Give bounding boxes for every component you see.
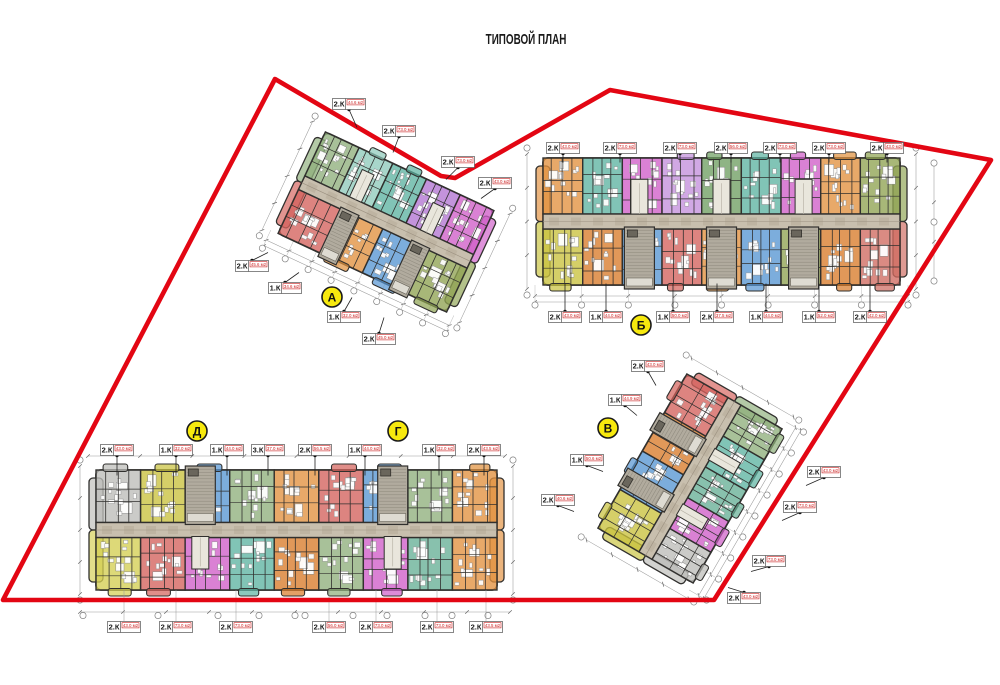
- svg-text:2.К: 2.К: [716, 144, 727, 153]
- svg-text:50.6 м2: 50.6 м2: [586, 456, 602, 461]
- svg-text:1.К: 1.К: [610, 396, 621, 405]
- svg-text:2.К: 2.К: [314, 623, 325, 632]
- svg-text:Д: Д: [193, 424, 202, 438]
- svg-text:44.0 м2: 44.0 м2: [765, 313, 781, 318]
- svg-text:56.0 м2: 56.0 м2: [328, 623, 344, 628]
- svg-text:2.К: 2.К: [729, 594, 740, 603]
- svg-text:2.К: 2.К: [765, 144, 776, 153]
- svg-text:73.0 м2: 73.0 м2: [679, 144, 695, 149]
- svg-text:2.К: 2.К: [300, 446, 311, 455]
- svg-text:2.К: 2.К: [109, 623, 120, 632]
- svg-text:2.К: 2.К: [665, 144, 676, 153]
- svg-text:43.0 м2: 43.0 м2: [647, 362, 663, 367]
- svg-text:1.К: 1.К: [270, 284, 281, 293]
- svg-text:Б: Б: [637, 318, 646, 332]
- svg-text:43.0 м2: 43.0 м2: [743, 594, 759, 599]
- svg-text:2.К: 2.К: [855, 313, 866, 322]
- svg-text:2.К: 2.К: [469, 446, 480, 455]
- svg-text:44.0 м2: 44.0 м2: [364, 446, 380, 451]
- svg-text:73.0 м2: 73.0 м2: [235, 623, 251, 628]
- svg-text:1.К: 1.К: [424, 446, 435, 455]
- svg-text:37.5 м2: 37.5 м2: [716, 313, 732, 318]
- svg-text:73.0 м2: 73.0 м2: [779, 144, 795, 149]
- svg-text:32.0 м2: 32.0 м2: [438, 446, 454, 451]
- svg-text:34.6 м2: 34.6 м2: [284, 284, 300, 289]
- svg-text:1.К: 1.К: [572, 456, 583, 465]
- svg-text:32.0 м2: 32.0 м2: [343, 313, 359, 318]
- svg-text:50.0 м2: 50.0 м2: [672, 313, 688, 318]
- svg-text:2.К: 2.К: [754, 557, 765, 566]
- svg-text:73.0 м2: 73.0 м2: [436, 623, 452, 628]
- svg-text:2.К: 2.К: [102, 446, 113, 455]
- svg-text:Г: Г: [395, 424, 402, 438]
- svg-text:43.5 м2: 43.5 м2: [485, 623, 501, 628]
- svg-text:1.К: 1.К: [329, 313, 340, 322]
- svg-text:44.0 м2: 44.0 м2: [226, 446, 242, 451]
- svg-text:43.5 м2: 43.5 м2: [483, 446, 499, 451]
- svg-text:2.К: 2.К: [237, 262, 248, 271]
- svg-text:44.9 м2: 44.9 м2: [624, 396, 640, 401]
- svg-text:ТИПОВОЙ ПЛАН: ТИПОВОЙ ПЛАН: [486, 30, 567, 48]
- svg-text:43.0 м2: 43.0 м2: [562, 144, 578, 149]
- svg-text:73.0 м2: 73.0 м2: [375, 623, 391, 628]
- svg-text:1.К: 1.К: [751, 313, 762, 322]
- svg-text:3.К: 3.К: [253, 446, 264, 455]
- svg-text:42.0 м2: 42.0 м2: [869, 313, 885, 318]
- svg-text:1.К: 1.К: [591, 313, 602, 322]
- svg-text:2.К: 2.К: [384, 127, 395, 136]
- svg-text:73.0 м2: 73.0 м2: [799, 503, 815, 508]
- svg-text:40.6 м2: 40.6 м2: [557, 496, 573, 501]
- svg-text:1.К: 1.К: [350, 446, 361, 455]
- svg-text:1.К: 1.К: [212, 446, 223, 455]
- svg-text:2.К: 2.К: [785, 503, 796, 512]
- svg-text:2.К: 2.К: [161, 623, 172, 632]
- svg-text:44.0 м2: 44.0 м2: [605, 313, 621, 318]
- svg-text:73.0 м2: 73.0 м2: [619, 144, 635, 149]
- svg-text:2.К: 2.К: [814, 144, 825, 153]
- svg-text:73.0 м2: 73.0 м2: [457, 158, 473, 163]
- svg-text:45.6 м2: 45.6 м2: [251, 262, 267, 267]
- svg-text:32.0 м2: 32.0 м2: [175, 446, 191, 451]
- svg-text:2.К: 2.К: [809, 468, 820, 477]
- svg-text:2.К: 2.К: [221, 623, 232, 632]
- svg-text:43.0 м2: 43.0 м2: [494, 179, 510, 184]
- svg-text:В: В: [604, 421, 613, 435]
- svg-text:А: А: [328, 290, 337, 304]
- svg-text:2.К: 2.К: [364, 335, 375, 344]
- svg-text:2.К: 2.К: [361, 623, 372, 632]
- svg-text:2.К: 2.К: [471, 623, 482, 632]
- svg-text:2.К: 2.К: [702, 313, 713, 322]
- svg-text:2.К: 2.К: [443, 158, 454, 167]
- svg-text:73.0 м2: 73.0 м2: [175, 623, 191, 628]
- svg-text:2.К: 2.К: [548, 144, 559, 153]
- svg-text:2.К: 2.К: [872, 144, 883, 153]
- svg-text:2.К: 2.К: [633, 362, 644, 371]
- svg-text:1.К: 1.К: [804, 313, 815, 322]
- svg-text:2.К: 2.К: [605, 144, 616, 153]
- svg-text:73.0 м2: 73.0 м2: [398, 127, 414, 132]
- svg-text:1.К: 1.К: [658, 313, 669, 322]
- svg-text:2.К: 2.К: [550, 313, 561, 322]
- svg-text:56.0 м2: 56.0 м2: [730, 144, 746, 149]
- svg-text:73.0 м2: 73.0 м2: [768, 557, 784, 562]
- svg-text:43.0 м2: 43.0 м2: [116, 446, 132, 451]
- svg-text:1.К: 1.К: [161, 446, 172, 455]
- svg-text:44.6 м2: 44.6 м2: [348, 100, 364, 105]
- svg-text:43.0 м2: 43.0 м2: [564, 313, 580, 318]
- svg-text:43.0 м2: 43.0 м2: [823, 468, 839, 473]
- svg-text:2.К: 2.К: [334, 100, 345, 109]
- svg-text:2.К: 2.К: [543, 496, 554, 505]
- svg-text:43.0 м2: 43.0 м2: [123, 623, 139, 628]
- svg-text:45.0 м2: 45.0 м2: [378, 335, 394, 340]
- svg-text:52.0 м2: 52.0 м2: [818, 313, 834, 318]
- svg-text:73.0 м2: 73.0 м2: [828, 144, 844, 149]
- svg-text:37.0 м2: 37.0 м2: [267, 446, 283, 451]
- svg-text:43.0 м2: 43.0 м2: [886, 144, 902, 149]
- svg-text:2.К: 2.К: [422, 623, 433, 632]
- svg-text:56.5 м2: 56.5 м2: [314, 446, 330, 451]
- svg-text:2.К: 2.К: [480, 179, 491, 188]
